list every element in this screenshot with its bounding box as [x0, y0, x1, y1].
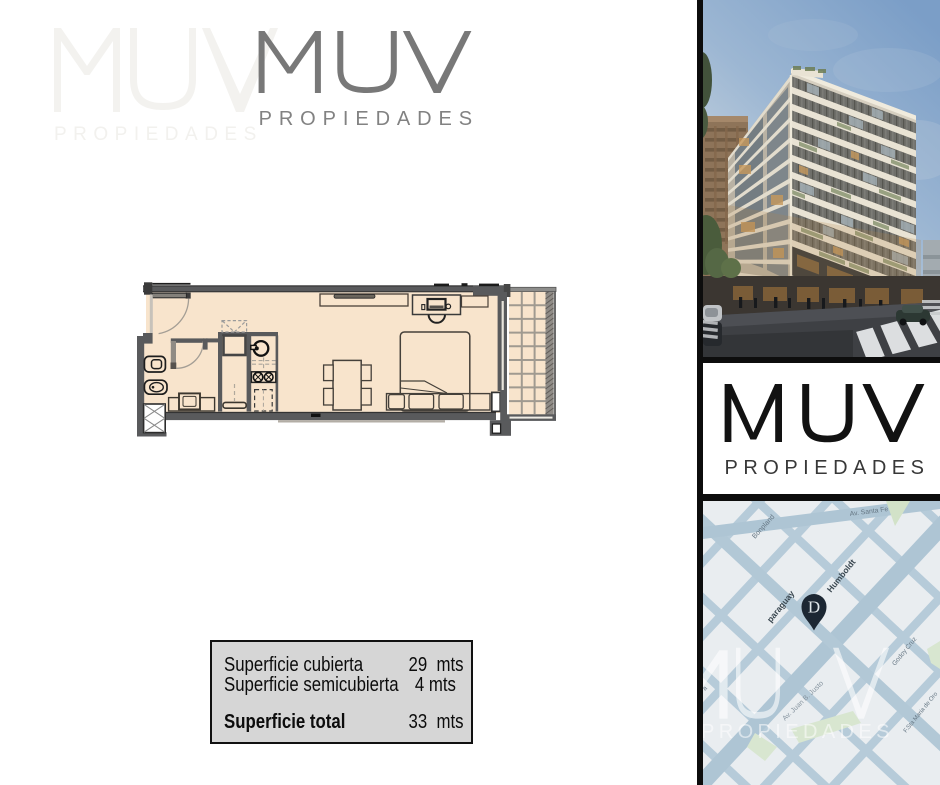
svg-text:PROPIEDADES: PROPIEDADES — [54, 124, 263, 145]
svg-text:PROPIEDADES: PROPIEDADES — [725, 457, 930, 479]
svg-text:D: D — [808, 597, 820, 616]
svg-text:PROPIEDADES: PROPIEDADES — [259, 108, 476, 129]
svg-text:PROPIEDADES: PROPIEDADES — [703, 721, 894, 743]
